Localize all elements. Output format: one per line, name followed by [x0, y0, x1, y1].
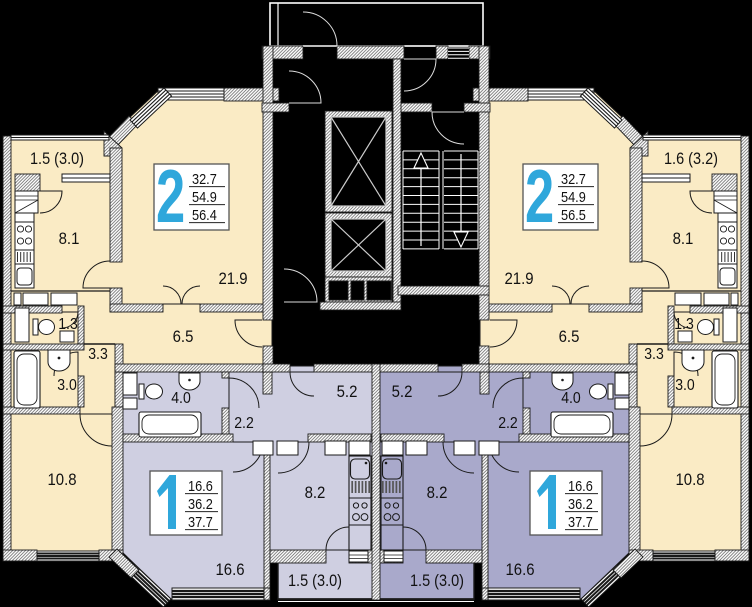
svg-text:54.9: 54.9 — [192, 188, 217, 205]
svg-text:3.0: 3.0 — [57, 376, 77, 394]
svg-text:8.2: 8.2 — [427, 484, 448, 502]
svg-text:1.5 (3.0): 1.5 (3.0) — [288, 572, 342, 590]
svg-text:2: 2 — [156, 154, 185, 239]
svg-text:16.6: 16.6 — [215, 561, 244, 579]
svg-text:4.0: 4.0 — [171, 389, 191, 407]
svg-text:16.6: 16.6 — [505, 561, 534, 579]
svg-text:1.3: 1.3 — [58, 315, 78, 333]
svg-text:6.5: 6.5 — [559, 328, 580, 346]
svg-text:1.5 (3.0): 1.5 (3.0) — [410, 572, 464, 590]
svg-text:37.7: 37.7 — [568, 513, 593, 530]
svg-text:3.3: 3.3 — [88, 345, 108, 363]
svg-text:2.2: 2.2 — [498, 414, 518, 432]
svg-text:3.3: 3.3 — [644, 345, 664, 363]
svg-text:36.2: 36.2 — [568, 495, 593, 512]
svg-text:6.5: 6.5 — [173, 328, 194, 346]
svg-text:5.2: 5.2 — [392, 383, 413, 401]
svg-text:10.8: 10.8 — [675, 471, 704, 489]
svg-text:2: 2 — [525, 154, 554, 239]
svg-text:1.3: 1.3 — [674, 315, 694, 333]
svg-text:8.1: 8.1 — [673, 230, 694, 248]
svg-text:2.2: 2.2 — [234, 414, 254, 432]
svg-text:8.2: 8.2 — [305, 484, 326, 502]
svg-text:21.9: 21.9 — [218, 270, 247, 288]
svg-text:16.6: 16.6 — [188, 477, 213, 494]
svg-text:32.7: 32.7 — [192, 170, 217, 187]
svg-text:3.0: 3.0 — [675, 376, 695, 394]
svg-text:32.7: 32.7 — [561, 170, 586, 187]
svg-text:21.9: 21.9 — [504, 270, 533, 288]
svg-text:8.1: 8.1 — [59, 230, 80, 248]
svg-text:10.8: 10.8 — [47, 471, 76, 489]
svg-text:4.0: 4.0 — [561, 389, 581, 407]
svg-text:56.5: 56.5 — [561, 206, 586, 223]
svg-text:37.7: 37.7 — [188, 513, 213, 530]
svg-text:1.5 (3.0): 1.5 (3.0) — [30, 150, 84, 168]
svg-text:1.6 (3.2): 1.6 (3.2) — [664, 150, 718, 168]
svg-text:36.2: 36.2 — [188, 495, 213, 512]
svg-text:16.6: 16.6 — [568, 477, 593, 494]
svg-text:5.2: 5.2 — [337, 383, 358, 401]
svg-text:54.9: 54.9 — [561, 188, 586, 205]
svg-text:56.4: 56.4 — [192, 206, 217, 223]
